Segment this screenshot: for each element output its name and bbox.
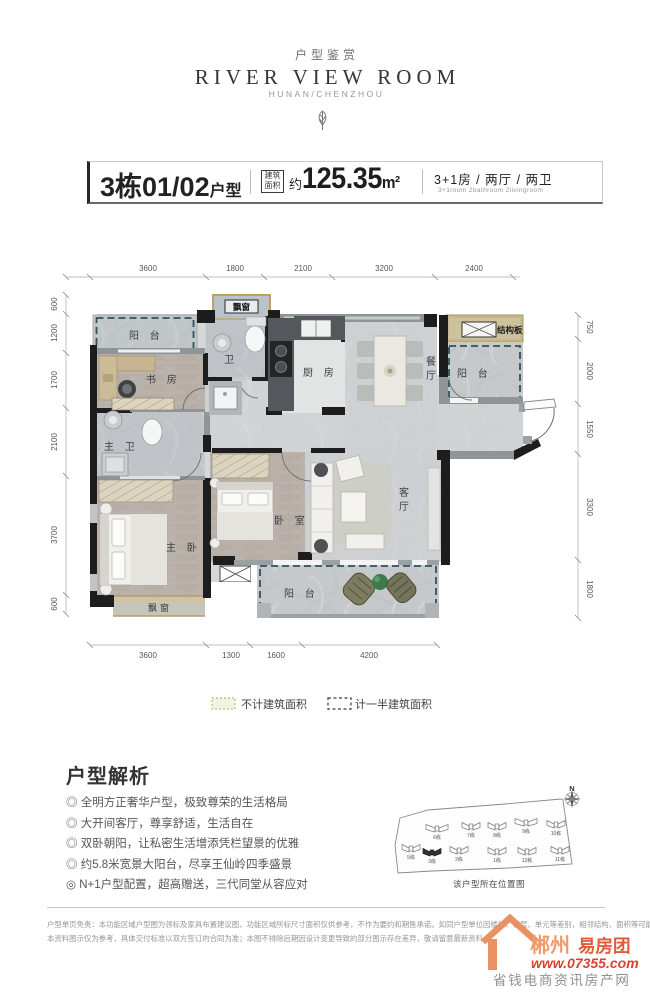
svg-text:5栋: 5栋 bbox=[407, 854, 415, 861]
svg-text:该户型所在位置图: 该户型所在位置图 bbox=[453, 879, 525, 889]
svg-text:2100: 2100 bbox=[50, 433, 59, 451]
svg-text:书 房: 书 房 bbox=[146, 373, 181, 386]
svg-text:4200: 4200 bbox=[360, 651, 378, 660]
svg-text:卧 室: 卧 室 bbox=[274, 514, 309, 527]
svg-text:1700: 1700 bbox=[50, 371, 59, 389]
svg-text:3700: 3700 bbox=[50, 526, 59, 544]
svg-text:主 卧: 主 卧 bbox=[166, 541, 201, 554]
svg-text:客: 客 bbox=[399, 486, 409, 499]
svg-text:1栋: 1栋 bbox=[493, 857, 501, 864]
svg-text:1200: 1200 bbox=[50, 324, 59, 342]
svg-text:易房团: 易房团 bbox=[578, 936, 631, 956]
svg-text:8栋: 8栋 bbox=[493, 832, 501, 839]
svg-text:阳 台: 阳 台 bbox=[129, 329, 164, 342]
svg-text:3300: 3300 bbox=[585, 498, 594, 516]
svg-text:郴州: 郴州 bbox=[530, 934, 570, 957]
svg-text:3600: 3600 bbox=[139, 264, 157, 273]
svg-text:11栋: 11栋 bbox=[555, 856, 565, 863]
svg-text:卫: 卫 bbox=[224, 355, 238, 366]
svg-text:飘窗: 飘窗 bbox=[233, 302, 251, 312]
svg-text:3栋: 3栋 bbox=[428, 858, 436, 865]
svg-text:阳 台: 阳 台 bbox=[457, 367, 492, 380]
svg-text:2栋: 2栋 bbox=[455, 856, 463, 863]
svg-text:2400: 2400 bbox=[465, 264, 483, 273]
svg-text:600: 600 bbox=[50, 297, 59, 311]
svg-text:2000: 2000 bbox=[585, 362, 594, 380]
svg-text:10栋: 10栋 bbox=[551, 830, 562, 837]
svg-text:1800: 1800 bbox=[226, 264, 244, 273]
svg-text:计一半建筑面积: 计一半建筑面积 bbox=[355, 697, 432, 711]
svg-text:主 卫: 主 卫 bbox=[104, 441, 139, 453]
svg-text:12栋: 12栋 bbox=[522, 857, 533, 864]
svg-text:省钱电商资讯房产网: 省钱电商资讯房产网 bbox=[493, 973, 631, 988]
svg-text:3200: 3200 bbox=[375, 264, 393, 273]
svg-text:1550: 1550 bbox=[585, 420, 594, 438]
svg-text:结构板: 结构板 bbox=[497, 325, 523, 335]
svg-text:7栋: 7栋 bbox=[467, 832, 475, 839]
svg-text:厨 房: 厨 房 bbox=[303, 366, 338, 379]
svg-text:1600: 1600 bbox=[267, 651, 285, 660]
svg-text:飘窗: 飘窗 bbox=[148, 602, 172, 613]
svg-text:3600: 3600 bbox=[139, 651, 157, 660]
svg-text:2100: 2100 bbox=[294, 264, 312, 273]
svg-text:厅: 厅 bbox=[399, 502, 409, 513]
svg-text:9栋: 9栋 bbox=[522, 828, 530, 835]
svg-text:750: 750 bbox=[585, 320, 594, 334]
svg-text:厅: 厅 bbox=[426, 371, 436, 382]
svg-text:不计建筑面积: 不计建筑面积 bbox=[241, 697, 307, 711]
svg-text:600: 600 bbox=[50, 597, 59, 611]
svg-text:餐: 餐 bbox=[426, 355, 436, 368]
svg-text:1800: 1800 bbox=[585, 580, 594, 598]
svg-text:阳 台: 阳 台 bbox=[284, 587, 319, 600]
svg-text:1300: 1300 bbox=[222, 651, 240, 660]
svg-text:6栋: 6栋 bbox=[433, 834, 441, 841]
svg-text:www.07355.com: www.07355.com bbox=[531, 955, 639, 971]
